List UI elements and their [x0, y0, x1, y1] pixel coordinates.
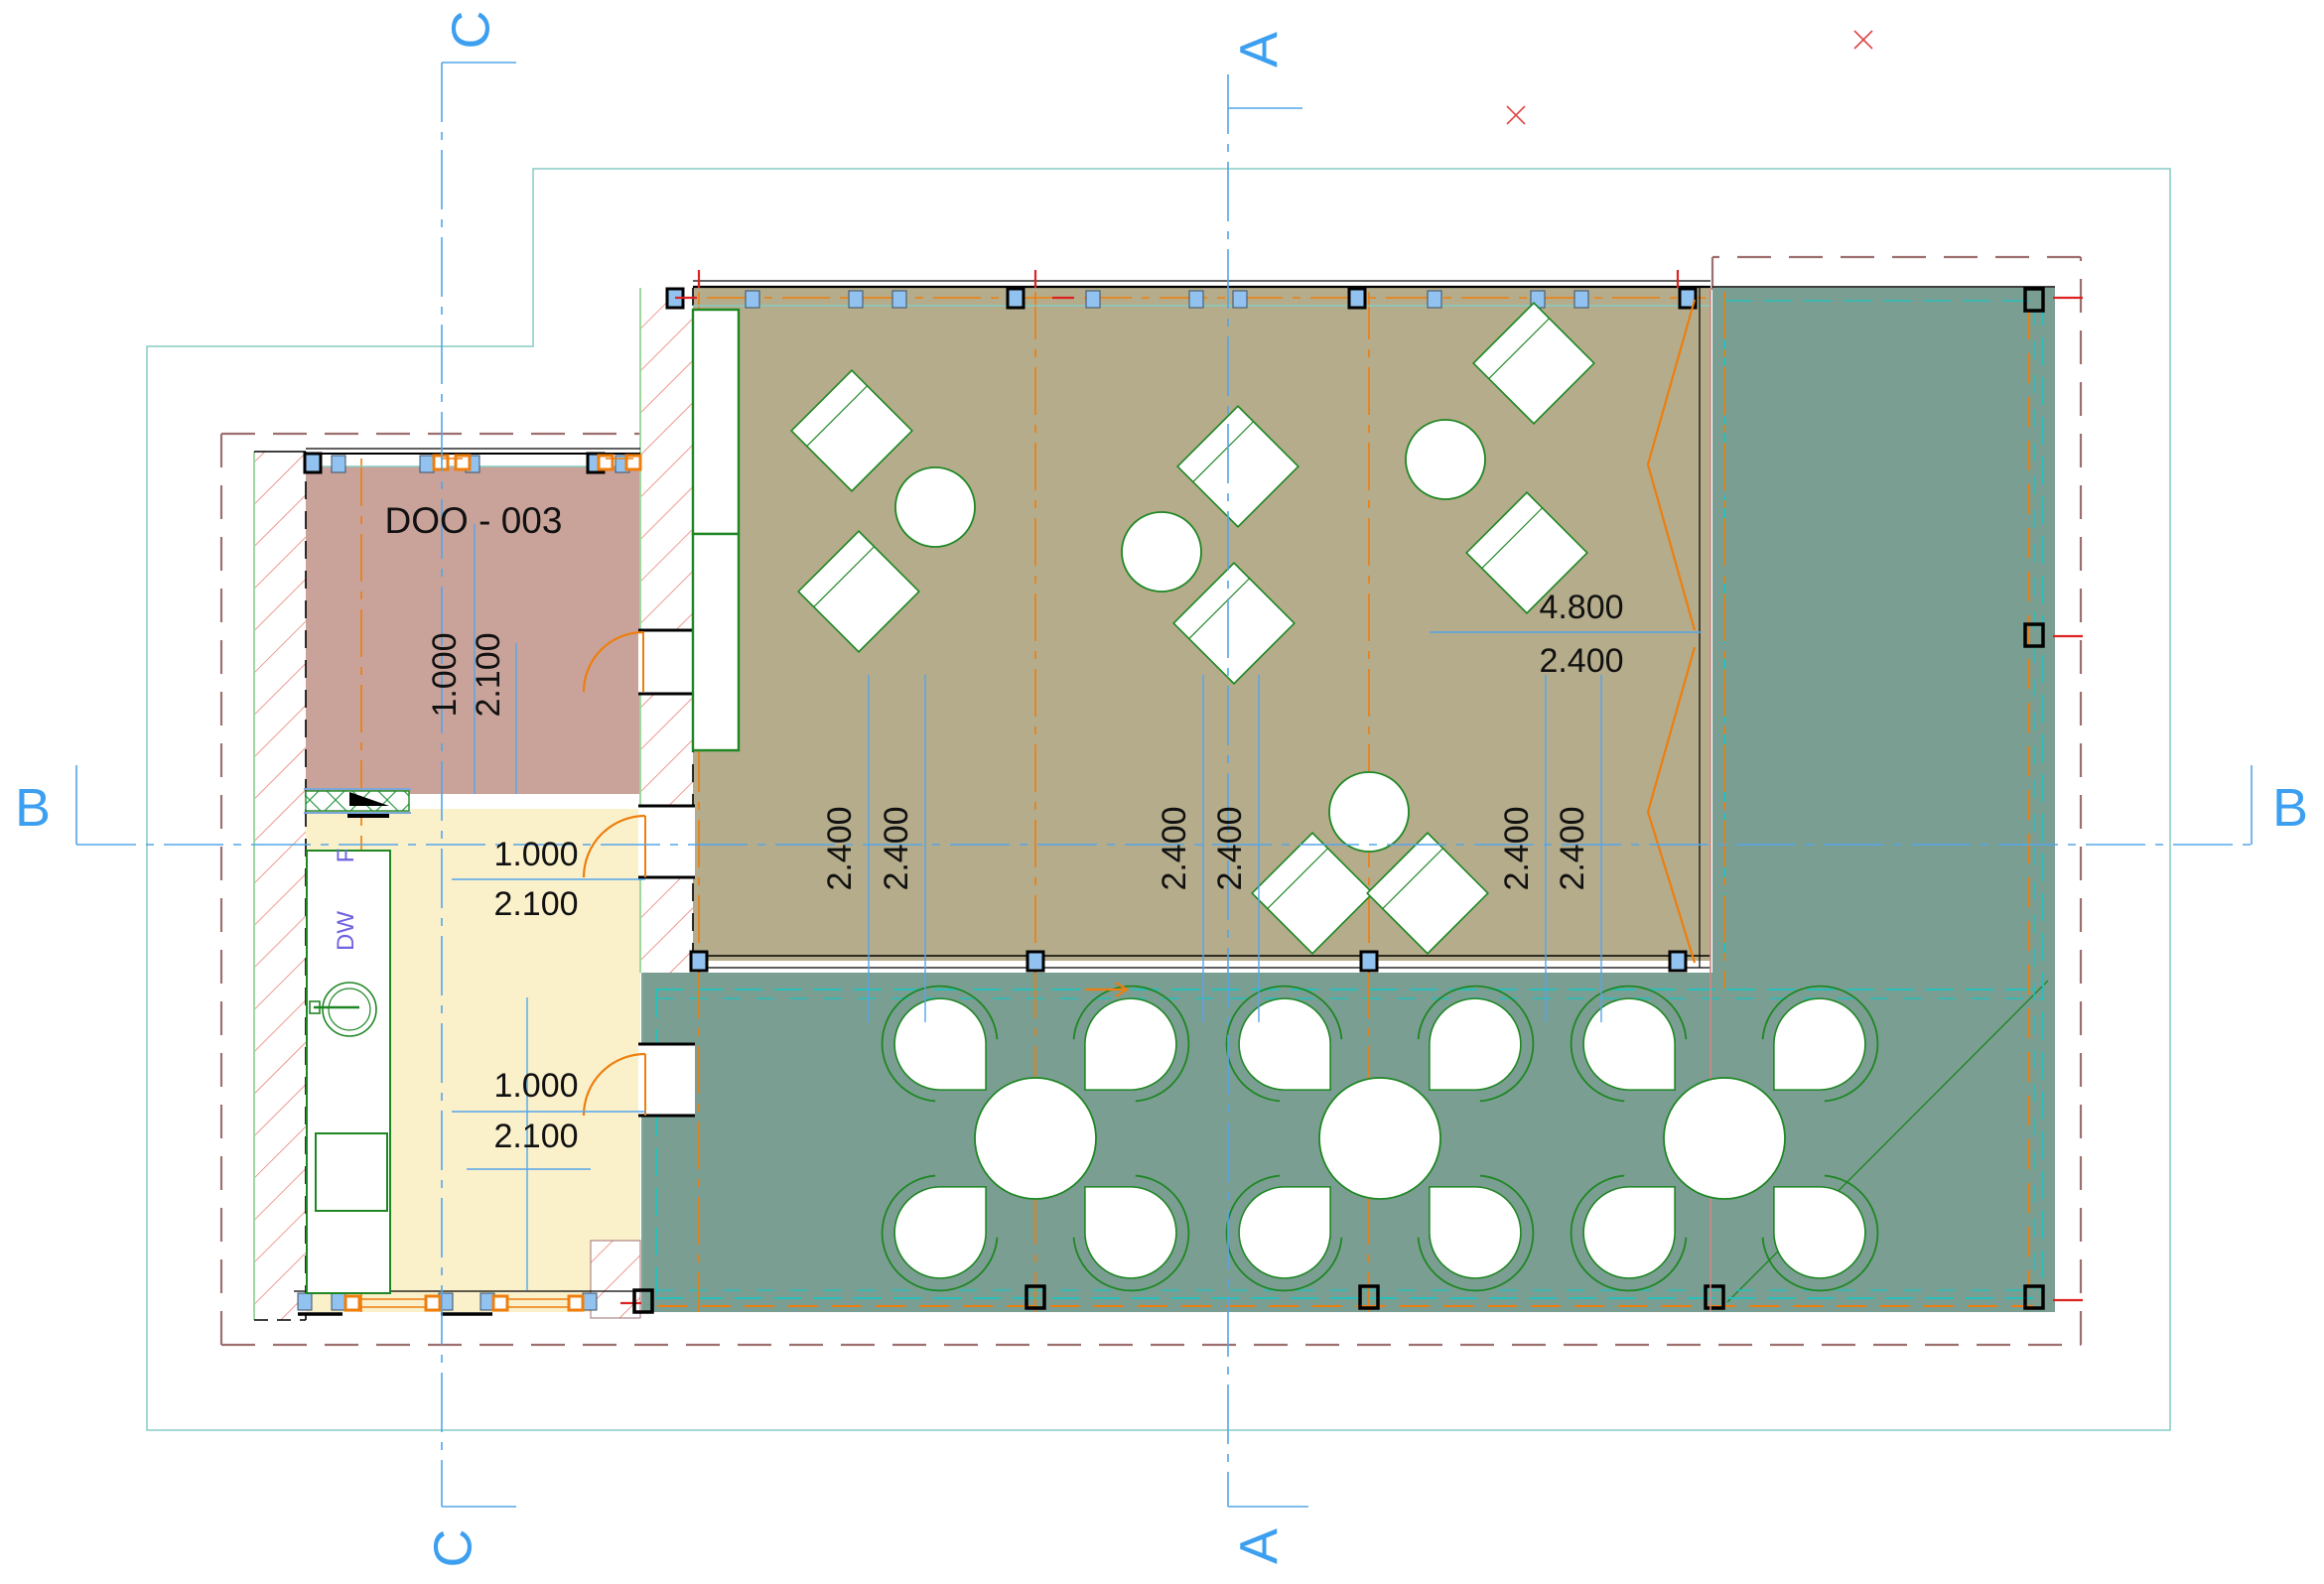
- dim-doo-door-height: 2.100: [470, 632, 507, 717]
- counter-dining-lower: [693, 534, 739, 750]
- dim-kitchen-door-upper-width: 1.000: [493, 836, 578, 873]
- floor-plan-drawing: DOO - 003 F DW 1.000 2.100 1.000 2.100 1…: [0, 0, 2324, 1584]
- stove: [316, 1133, 387, 1211]
- section-marker-c-top: C: [441, 11, 500, 50]
- fridge-label: F: [333, 849, 359, 863]
- dim-doo-door-width: 1.000: [426, 632, 464, 717]
- dim-kitchen-door-upper-height: 2.100: [493, 885, 578, 923]
- dim-grid-2: 2.400: [878, 806, 915, 890]
- dim-kitchen-door-lower-height: 2.100: [493, 1118, 578, 1155]
- dim-grid-1: 2.400: [821, 806, 859, 890]
- dim-grid-6: 2.400: [1554, 806, 1591, 890]
- floor-plan-canvas[interactable]: DOO - 003 F DW 1.000 2.100 1.000 2.100 1…: [0, 0, 2324, 1584]
- wall-hatched-left: [254, 452, 306, 1320]
- dishwasher-label: DW: [333, 911, 359, 951]
- red-x-marker: [1507, 31, 1872, 124]
- section-marker-b-right: B: [2272, 778, 2308, 838]
- counter-dining-upper: [693, 310, 739, 534]
- dim-bay-half: 2.400: [1539, 642, 1623, 680]
- deck-bottom: [643, 973, 1712, 1312]
- dim-grid-3: 2.400: [1156, 806, 1193, 890]
- section-marker-a-top: A: [1229, 32, 1289, 67]
- dim-grid-5: 2.400: [1498, 806, 1536, 890]
- sink: [323, 983, 376, 1036]
- dim-kitchen-door-lower-width: 1.000: [493, 1067, 578, 1105]
- room-label: DOO - 003: [385, 500, 563, 541]
- dim-bay-total: 4.800: [1539, 589, 1623, 626]
- section-marker-a-bottom: A: [1229, 1528, 1289, 1564]
- section-marker-c-bottom: C: [423, 1529, 482, 1568]
- section-marker-b-left: B: [15, 778, 51, 838]
- dim-grid-4: 2.400: [1211, 806, 1249, 890]
